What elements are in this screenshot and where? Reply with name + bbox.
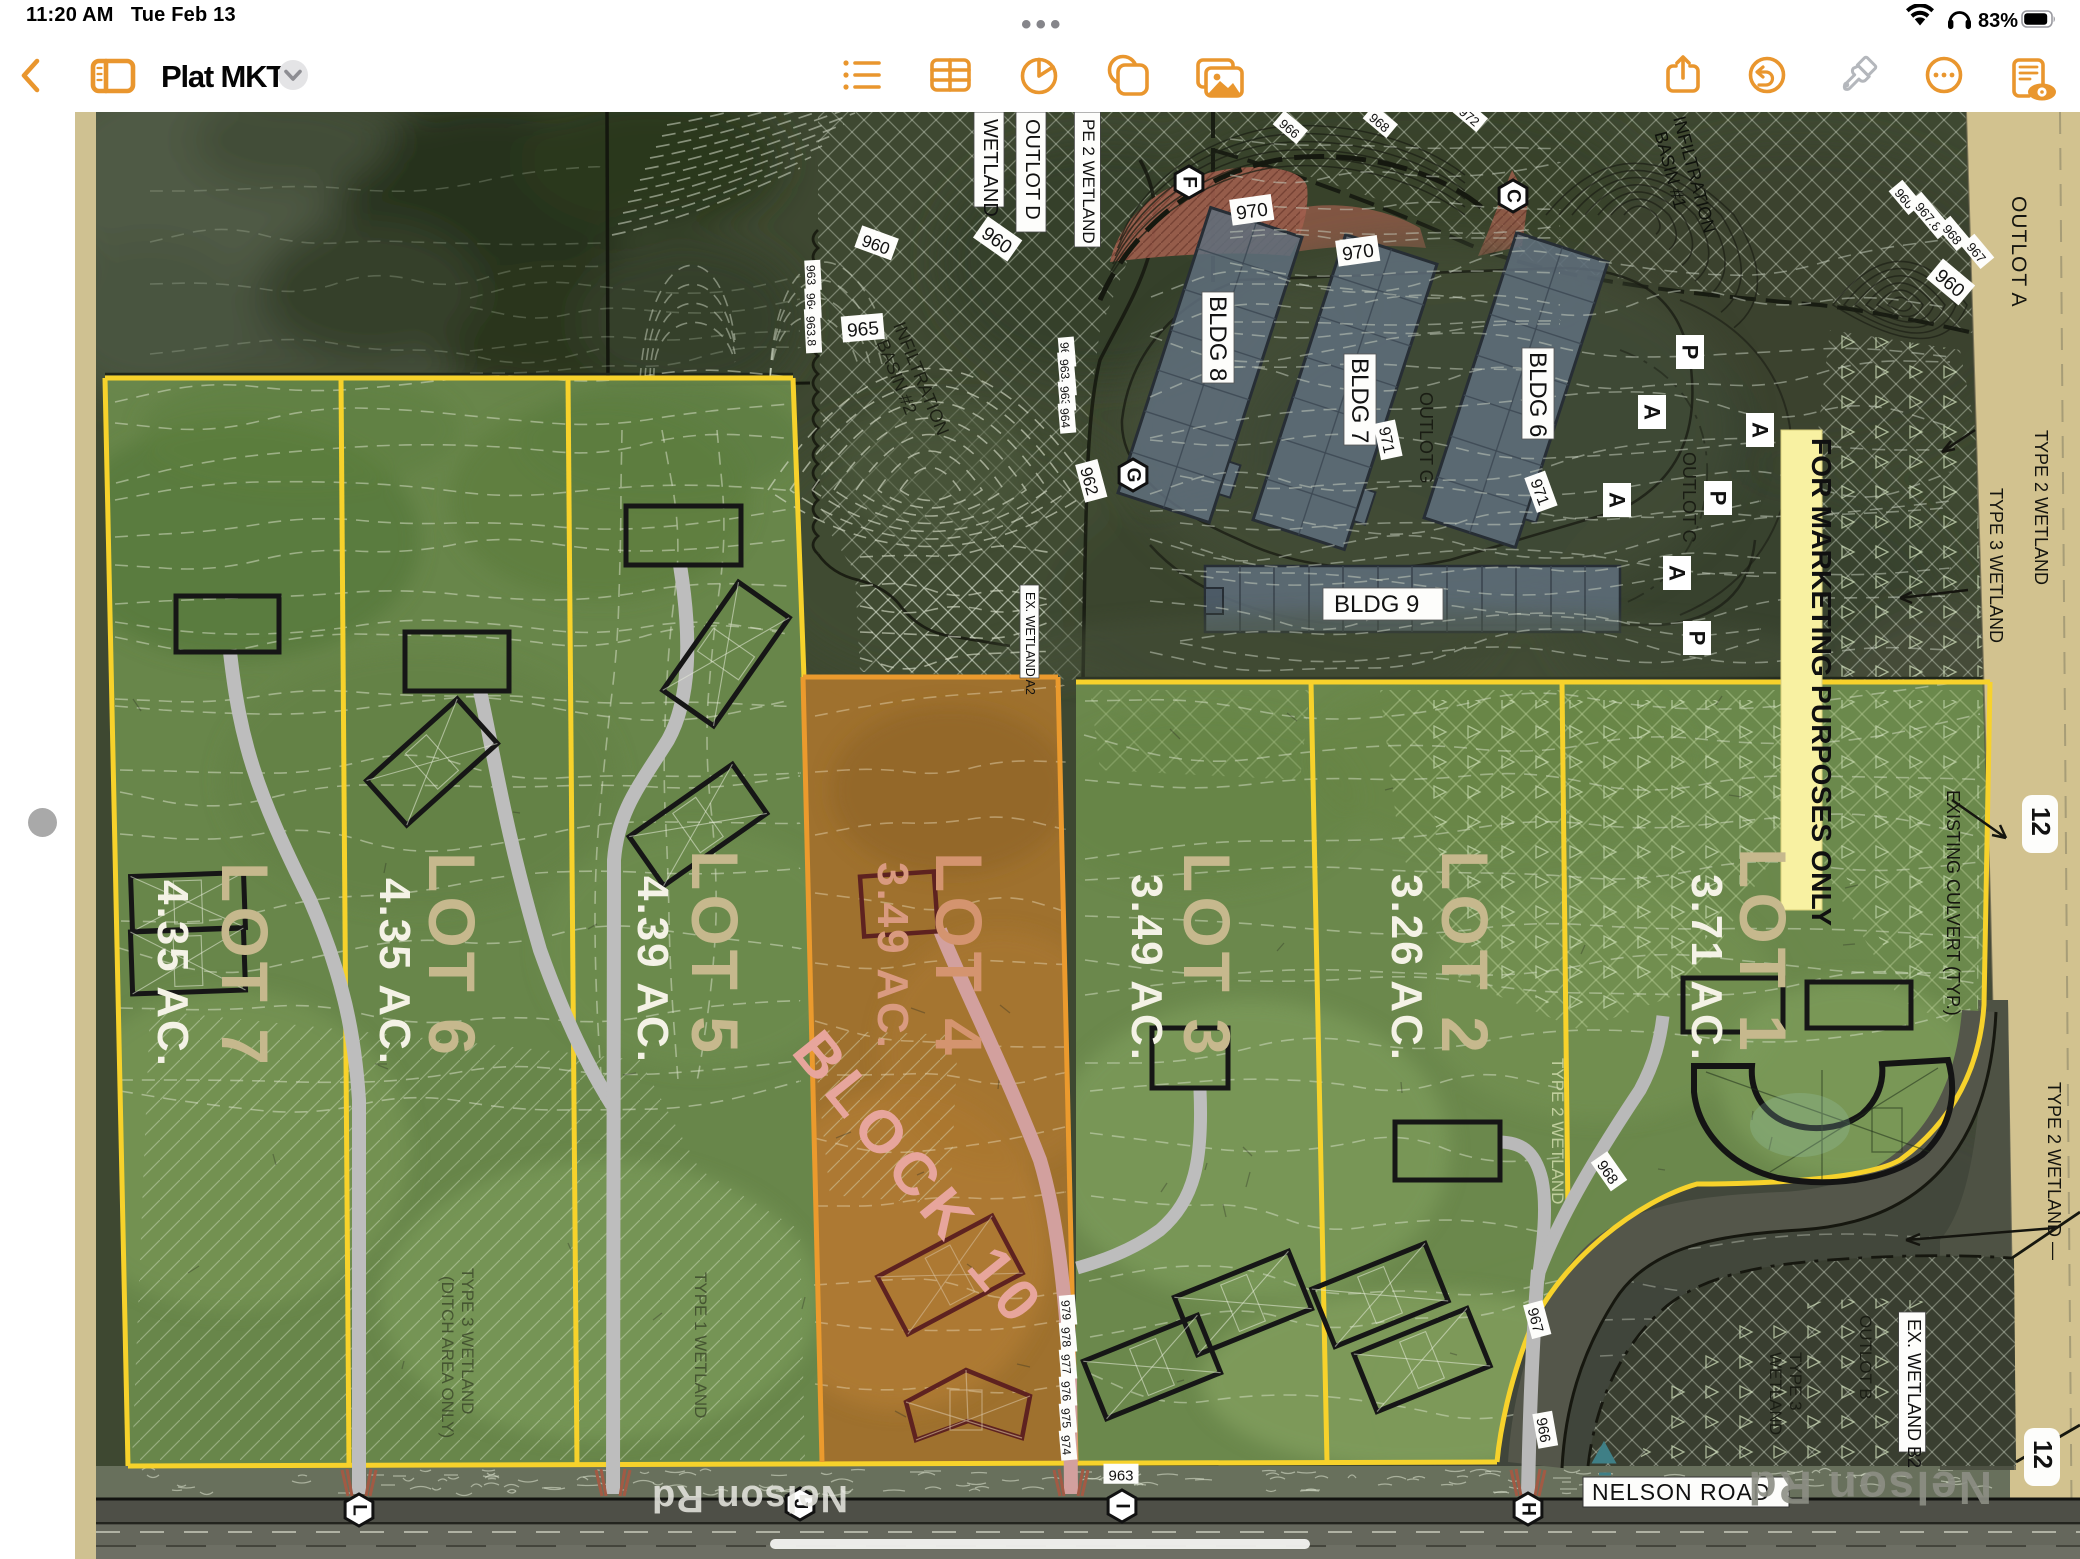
svg-text:3.49 AC.: 3.49 AC. xyxy=(868,862,917,1050)
svg-text:970: 970 xyxy=(1235,199,1269,224)
svg-text:3.26 AC.: 3.26 AC. xyxy=(1382,874,1431,1062)
svg-text:WETLAND: WETLAND xyxy=(1766,1352,1785,1435)
svg-text:Nelson Rd: Nelson Rd xyxy=(1747,1462,1992,1514)
svg-text:A: A xyxy=(1665,565,1690,581)
svg-text:TYPE 1 WETLAND: TYPE 1 WETLAND xyxy=(691,1272,710,1418)
svg-text:BLDG 7: BLDG 7 xyxy=(1346,358,1373,443)
svg-text:OUTLOT A: OUTLOT A xyxy=(2007,196,2030,307)
svg-text:LOT 7: LOT 7 xyxy=(208,862,282,1069)
svg-text:OUTLOT C: OUTLOT C xyxy=(1679,452,1699,543)
svg-text:OUTLOT G: OUTLOT G xyxy=(1416,392,1436,484)
svg-text:PE 2 WETLAND: PE 2 WETLAND xyxy=(1079,119,1098,244)
svg-text:I: I xyxy=(1112,1503,1133,1508)
svg-text:979: 979 xyxy=(1058,1299,1074,1320)
svg-text:BLDG 8: BLDG 8 xyxy=(1204,296,1231,381)
svg-text:TYPE 2 WETLAND: TYPE 2 WETLAND xyxy=(1548,1058,1567,1204)
svg-text:C: C xyxy=(1503,189,1524,203)
svg-text:Plat MKT: Plat MKT xyxy=(161,59,285,94)
svg-text:EX. WETLAND B2: EX. WETLAND B2 xyxy=(1904,1319,1924,1468)
svg-text:G: G xyxy=(1123,468,1144,483)
svg-text:12: 12 xyxy=(2028,1440,2058,1469)
svg-text:975: 975 xyxy=(1058,1407,1074,1428)
svg-text:BLDG 6: BLDG 6 xyxy=(1524,352,1551,437)
svg-text:F: F xyxy=(1179,176,1200,188)
svg-text:963: 963 xyxy=(1108,1468,1133,1485)
svg-text:4.35 AC.: 4.35 AC. xyxy=(370,878,419,1066)
svg-text:P: P xyxy=(1706,491,1731,506)
svg-text:976: 976 xyxy=(1058,1380,1074,1401)
svg-text:OUTLOT D: OUTLOT D xyxy=(1021,119,1043,220)
svg-text:963.8: 963.8 xyxy=(803,316,819,347)
svg-text:WETLAND: WETLAND xyxy=(979,119,1001,217)
svg-text:LOT 2: LOT 2 xyxy=(1428,850,1502,1057)
svg-text:974: 974 xyxy=(1058,1434,1074,1455)
svg-text:3.71 AC.: 3.71 AC. xyxy=(1682,874,1731,1062)
svg-text:TYPE 3 WETLAND: TYPE 3 WETLAND xyxy=(458,1268,477,1414)
svg-text:978: 978 xyxy=(1058,1326,1074,1347)
svg-text:977: 977 xyxy=(1058,1353,1074,1374)
svg-text:LOT 3: LOT 3 xyxy=(1170,852,1244,1059)
svg-text:EX. WETLAND A2: EX. WETLAND A2 xyxy=(1023,592,1037,695)
svg-text:12: 12 xyxy=(2026,807,2056,836)
svg-text:BLDG 9: BLDG 9 xyxy=(1334,591,1419,618)
svg-text:970: 970 xyxy=(1341,240,1375,265)
svg-text:TYPE 2 WETLAND —: TYPE 2 WETLAND — xyxy=(2044,1082,2064,1260)
svg-text:EXISTING CULVERT (TYP.): EXISTING CULVERT (TYP.) xyxy=(1943,790,1963,1016)
svg-text:4.35 AC.: 4.35 AC. xyxy=(148,880,197,1068)
svg-text:3.49 AC.: 3.49 AC. xyxy=(1122,874,1171,1062)
svg-text:NELSON ROAD: NELSON ROAD xyxy=(1592,1479,1770,1505)
svg-text:TYPE 2 WETLAND: TYPE 2 WETLAND xyxy=(2031,430,2051,585)
svg-text:A: A xyxy=(1748,422,1773,438)
svg-text:L: L xyxy=(349,1504,370,1516)
svg-text:A: A xyxy=(1640,404,1665,420)
svg-text:A: A xyxy=(1605,492,1630,508)
svg-text:FOR MARKETING PURPOSES ONLY: FOR MARKETING PURPOSES ONLY xyxy=(1806,438,1837,926)
svg-text:TYPE 3 WETLAND: TYPE 3 WETLAND xyxy=(1986,488,2006,643)
svg-text:83%: 83% xyxy=(1978,10,2018,32)
svg-text:P: P xyxy=(1685,631,1710,646)
svg-text:P: P xyxy=(1678,345,1703,360)
svg-text:964: 964 xyxy=(1057,407,1073,428)
svg-text:TYPE 3: TYPE 3 xyxy=(1786,1352,1805,1411)
svg-text:LOT 5: LOT 5 xyxy=(678,850,752,1057)
svg-text:(DITCH AREA ONLY): (DITCH AREA ONLY) xyxy=(438,1276,457,1438)
svg-text:4.39 AC.: 4.39 AC. xyxy=(628,876,677,1064)
svg-text:LOT 6: LOT 6 xyxy=(415,852,489,1059)
svg-text:963: 963 xyxy=(803,265,818,286)
svg-text:965: 965 xyxy=(846,318,879,342)
svg-text:LOT 4: LOT 4 xyxy=(922,852,996,1059)
svg-text:Nelson Rd: Nelson Rd xyxy=(651,1477,848,1519)
svg-text:H: H xyxy=(1518,1502,1539,1516)
svg-text:OUTLOT B: OUTLOT B xyxy=(1856,1315,1875,1400)
svg-text:LOT 1: LOT 1 xyxy=(1726,848,1800,1055)
